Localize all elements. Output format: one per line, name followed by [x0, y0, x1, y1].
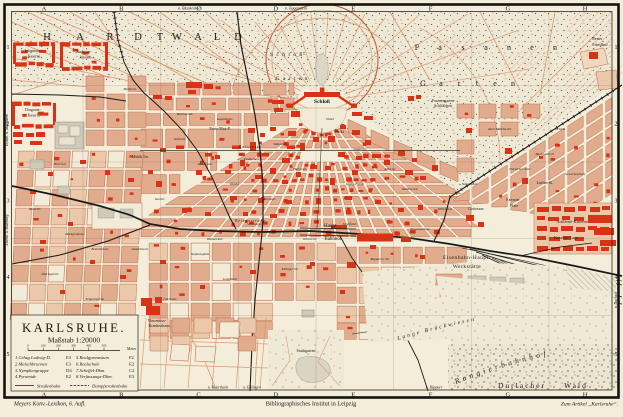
svg-text:Kapellenstr.: Kapellenstr. [216, 117, 233, 121]
svg-text:Stadtgarten: Stadtgarten [296, 348, 316, 353]
svg-text:R: R [106, 32, 113, 43]
svg-text:Festhalle: Festhalle [243, 157, 257, 161]
svg-text:Karlstr.: Karlstr. [154, 197, 165, 201]
svg-text:Stephansplatz: Stephansplatz [191, 252, 210, 256]
svg-text:n: n [553, 43, 557, 52]
svg-text:D: D [274, 392, 279, 399]
svg-text:Prinz-Max-P.: Prinz-Max-P. [209, 126, 230, 131]
svg-text:B: B [119, 5, 124, 12]
svg-text:Artillerië-Kaserne: Artillerië-Kaserne [556, 219, 587, 224]
svg-text:F: F [429, 5, 433, 12]
svg-text:2.Malschbrunnen: 2.Malschbrunnen [15, 361, 48, 366]
svg-text:6.Realschule: 6.Realschule [76, 361, 100, 366]
svg-text:Schloß: Schloß [314, 99, 330, 105]
svg-text:Durlacher: Durlacher [498, 381, 546, 390]
svg-text:E3: E3 [66, 361, 72, 366]
svg-text:Dampfstraßenbahn: Dampfstraßenbahn [91, 383, 128, 388]
svg-text:Luther-K.: Luther-K. [537, 180, 554, 185]
svg-text:G a r t e n: G a r t e n [276, 76, 309, 82]
svg-text:n: n [511, 79, 515, 88]
svg-text:Kreuzstr.: Kreuzstr. [263, 197, 276, 201]
svg-text:Zähringerstr.: Zähringerstr. [41, 272, 59, 276]
svg-text:D: D [134, 32, 142, 43]
svg-text:n. Durlach: n. Durlach [614, 292, 618, 309]
svg-text:K a i s e r s t r.: K a i s e r s t r. [238, 145, 261, 149]
svg-text:Südendstr.: Südendstr. [273, 142, 287, 146]
svg-text:Markt: Markt [334, 129, 345, 134]
svg-text:Eisenb. n. Mannheim: Eisenb. n. Mannheim [5, 114, 9, 148]
svg-text:Amalienstr.: Amalienstr. [197, 162, 213, 166]
svg-text:G: G [505, 392, 510, 399]
svg-text:n: n [507, 43, 511, 52]
svg-text:Baumeisterstr.: Baumeisterstr. [536, 152, 555, 156]
svg-text:Ritterstr.: Ritterstr. [28, 207, 41, 211]
svg-text:Schützenstr.: Schützenstr. [247, 222, 263, 226]
svg-text:Kaserne: Kaserne [28, 55, 41, 59]
svg-text:Exerzier: Exerzier [506, 197, 520, 202]
svg-text:Hirschstr.: Hirschstr. [53, 162, 67, 166]
svg-text:n. Rüppurr: n. Rüppurr [426, 386, 443, 390]
svg-text:5: 5 [7, 352, 10, 358]
svg-text:Meter: Meter [127, 347, 137, 351]
svg-text:1.Grhzg Ludwig-D.: 1.Grhzg Ludwig-D. [15, 355, 51, 360]
svg-text:E3: E3 [66, 355, 72, 360]
svg-text:Körnerstr.: Körnerstr. [302, 237, 317, 241]
svg-text:F: F [415, 43, 420, 52]
svg-text:Gewerbeschule: Gewerbeschule [565, 172, 586, 176]
svg-text:s: s [461, 43, 464, 52]
svg-text:Sofienstr.: Sofienstr. [174, 137, 186, 141]
svg-text:400: 400 [86, 344, 91, 348]
svg-text:Eisenbahn-Haupt-: Eisenbahn-Haupt- [443, 255, 491, 261]
svg-text:n. Blankenloch: n. Blankenloch [178, 6, 202, 11]
svg-text:C: C [196, 392, 200, 399]
svg-text:Erbprinzenstr.: Erbprinzenstr. [85, 297, 105, 301]
svg-text:G: G [420, 79, 426, 88]
svg-text:B: B [119, 392, 124, 399]
svg-text:G: G [505, 5, 510, 12]
svg-text:C2: C2 [129, 368, 135, 373]
svg-text:Schlößchen: Schlößchen [434, 104, 452, 108]
svg-text:Haupt-: Haupt- [324, 224, 338, 229]
svg-text:e: e [530, 43, 534, 52]
svg-text:Friedhof: Friedhof [592, 42, 608, 47]
svg-text:E2: E2 [66, 374, 72, 379]
svg-text:Rüppurrer Str.: Rüppurrer Str. [370, 257, 390, 261]
svg-text:Werkstätte: Werkstätte [453, 264, 481, 270]
svg-text:Zirkel: Zirkel [326, 117, 334, 121]
svg-text:7.Scheffel-Dkm.: 7.Scheffel-Dkm. [76, 368, 105, 373]
svg-text:D: D [274, 5, 279, 12]
svg-text:Karl-Wilhelm-Str.: Karl-Wilhelm-Str. [487, 127, 512, 131]
svg-text:Krankenhaus: Krankenhaus [148, 323, 170, 328]
svg-text:n. Ettlingen: n. Ettlingen [243, 386, 261, 390]
svg-text:Gartenstr.: Gartenstr. [163, 297, 177, 301]
svg-text:Bahnhof: Bahnhof [324, 237, 342, 242]
svg-text:4: 4 [7, 275, 10, 281]
svg-text:E3: E3 [129, 374, 135, 379]
svg-text:Gottesaue: Gottesaue [468, 207, 483, 211]
svg-text:Infanterie-: Infanterie- [25, 49, 42, 53]
svg-text:D4: D4 [66, 368, 72, 373]
svg-text:Zum Artikel „Karlsruhe“.: Zum Artikel „Karlsruhe“. [561, 401, 618, 408]
svg-text:Bismarckstr.: Bismarckstr. [207, 237, 224, 241]
svg-text:r: r [458, 79, 461, 88]
svg-text:Dragoner-: Dragoner- [25, 108, 42, 112]
svg-text:Beiertheimer: Beiertheimer [91, 247, 109, 251]
svg-text:Waldhornstr.: Waldhornstr. [402, 187, 419, 191]
svg-text:Meyers Konv.-Lexikon, 6. Aufl.: Meyers Konv.-Lexikon, 6. Aufl. [13, 401, 86, 408]
svg-text:Moltkestr.: Moltkestr. [122, 87, 136, 91]
svg-text:Victoria: Victoria [555, 127, 566, 131]
svg-text:Platz: Platz [510, 203, 518, 208]
svg-text:F: F [429, 392, 433, 399]
svg-text:4: 4 [615, 275, 618, 281]
svg-text:Kaserne-Lage: Kaserne-Lage [554, 235, 578, 240]
svg-text:a: a [439, 79, 443, 88]
svg-text:T: T [157, 32, 164, 43]
svg-text:500: 500 [102, 344, 107, 348]
svg-text:a: a [484, 43, 488, 52]
svg-text:5.Realgymnasium: 5.Realgymnasium [76, 355, 109, 360]
svg-text:Durlacher Allee: Durlacher Allee [508, 167, 531, 171]
svg-text:Anstalt: Anstalt [79, 56, 91, 60]
svg-text:8.Verfassungs-Dkm.: 8.Verfassungs-Dkm. [76, 374, 113, 379]
svg-text:5: 5 [615, 352, 618, 358]
svg-text:n. Eggenstein: n. Eggenstein [285, 6, 307, 11]
svg-text:S c h l o ß-: S c h l o ß- [270, 51, 306, 58]
svg-text:Bernhardstr.: Bernhardstr. [177, 112, 194, 116]
svg-text:3: 3 [615, 198, 618, 204]
svg-text:Fasanengarten: Fasanengarten [432, 99, 454, 103]
svg-text:Georg-Friedr.: Georg-Friedr. [346, 182, 365, 186]
svg-text:A: A [76, 32, 84, 43]
svg-text:Leopoldstr.: Leopoldstr. [222, 277, 238, 281]
svg-text:A: A [42, 392, 47, 399]
svg-text:Wilhelmstr.: Wilhelmstr. [438, 207, 453, 211]
svg-text:1: 1 [7, 45, 10, 51]
svg-text:2: 2 [615, 122, 618, 128]
svg-text:KARLSRUHE.: KARLSRUHE. [22, 321, 126, 335]
svg-text:300: 300 [71, 344, 76, 348]
svg-text:Akademiestr.: Akademiestr. [131, 247, 149, 251]
svg-text:H: H [43, 32, 51, 43]
svg-text:E: E [351, 5, 355, 12]
svg-text:Lange Str.: Lange Str. [352, 147, 367, 151]
svg-text:Bibliographisches Institut in: Bibliographisches Institut in Leipzig [266, 401, 357, 408]
svg-text:4.Pyramide: 4.Pyramide [15, 374, 36, 379]
svg-text:H: H [583, 5, 588, 12]
svg-text:Eisenb. n. Mühlburg: Eisenb. n. Mühlburg [5, 214, 9, 246]
svg-text:Nebeniusstr.: Nebeniusstr. [461, 182, 478, 186]
svg-text:Kadetten-: Kadetten- [76, 50, 92, 54]
svg-text:1: 1 [615, 45, 618, 51]
svg-text:200: 200 [56, 344, 61, 348]
svg-text:H: H [583, 392, 588, 399]
svg-text:Wald: Wald [564, 381, 588, 390]
svg-text:Scheffelstr.: Scheffelstr. [343, 222, 358, 226]
svg-text:D: D [234, 32, 242, 43]
svg-text:n. Beiertheim: n. Beiertheim [208, 386, 229, 390]
svg-text:Mühlb.Tor: Mühlb.Tor [132, 155, 149, 159]
svg-text:Markgrafenstr.: Markgrafenstr. [64, 232, 85, 236]
svg-text:e: e [493, 79, 497, 88]
svg-text:Waldstr.: Waldstr. [230, 182, 241, 186]
svg-text:Kaserne: Kaserne [28, 114, 41, 118]
svg-text:3: 3 [7, 198, 10, 204]
svg-text:A: A [194, 32, 202, 43]
svg-text:E: E [351, 392, 355, 399]
svg-text:Adlerstr.: Adlerstr. [383, 167, 396, 171]
svg-text:Ettlinger Str.: Ettlinger Str. [281, 267, 299, 271]
svg-text:Nowackanlage: Nowackanlage [409, 227, 430, 231]
svg-text:W: W [172, 32, 182, 43]
svg-text:100: 100 [41, 344, 46, 348]
svg-text:E2: E2 [129, 361, 135, 366]
svg-text:A: A [42, 5, 47, 12]
svg-text:Herrenstr.: Herrenstr. [292, 167, 307, 171]
svg-text:Straßenbahn: Straßenbahn [37, 383, 61, 388]
svg-text:Neuer: Neuer [592, 36, 603, 41]
svg-text:3.Nymphengruppe: 3.Nymphengruppe [15, 368, 49, 373]
svg-text:a: a [438, 43, 442, 52]
svg-text:F2: F2 [129, 355, 135, 360]
svg-text:L: L [214, 32, 220, 43]
